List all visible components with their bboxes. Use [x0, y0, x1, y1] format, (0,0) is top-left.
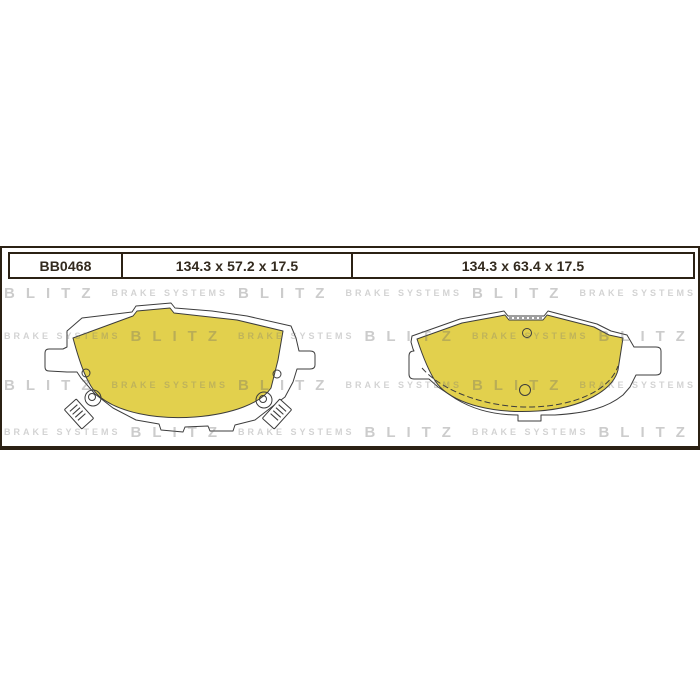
- dimensions-cell-right-pad: 134.3 x 63.4 x 17.5: [351, 254, 693, 277]
- product-image-canvas: BB0468 134.3 x 57.2 x 17.5 134.3 x 63.4 …: [0, 0, 700, 700]
- watermark-tagline-text: BRAKE SYSTEMS: [345, 288, 462, 298]
- watermark-brand-text: BLITZ: [238, 285, 336, 302]
- spec-table: BB0468 134.3 x 57.2 x 17.5 134.3 x 63.4 …: [8, 252, 695, 279]
- content-frame: BB0468 134.3 x 57.2 x 17.5 134.3 x 63.4 …: [0, 246, 700, 450]
- left-brake-pad-drawing: [37, 300, 317, 446]
- left-pad-pin: [89, 394, 96, 401]
- wear-indicator-tab-left: [64, 399, 93, 429]
- right-pad-friction-material: [417, 315, 623, 412]
- dimensions-cell-left-pad: 134.3 x 57.2 x 17.5: [121, 254, 351, 277]
- watermark-tagline-text: BRAKE SYSTEMS: [579, 288, 696, 298]
- part-number-cell: BB0468: [10, 254, 121, 277]
- watermark-brand-text: BLITZ: [4, 285, 102, 302]
- watermark-tagline-text: BRAKE SYSTEMS: [111, 288, 228, 298]
- right-brake-pad-drawing: [387, 298, 672, 448]
